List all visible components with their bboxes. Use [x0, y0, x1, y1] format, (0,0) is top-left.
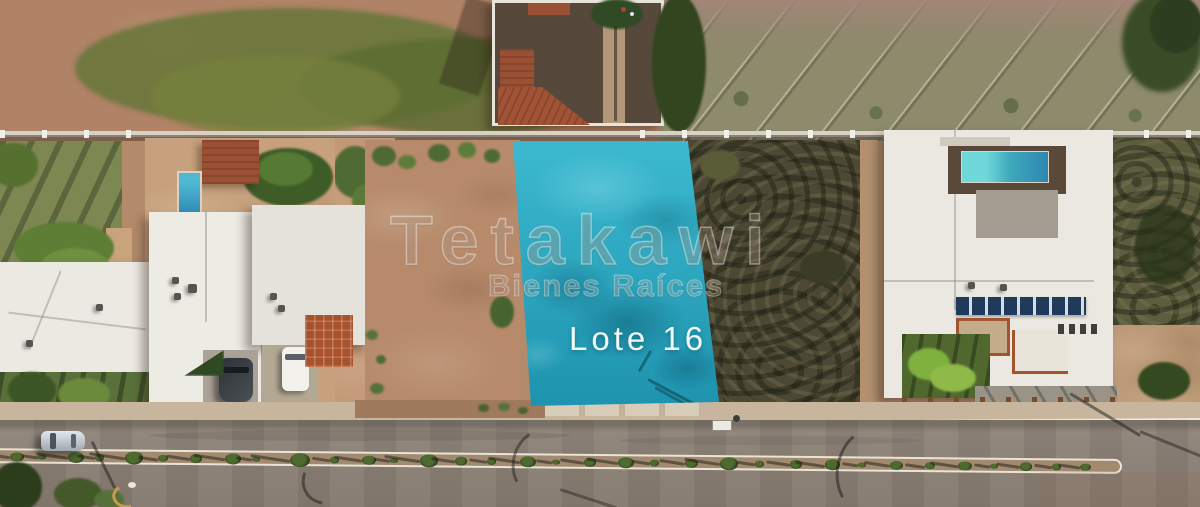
- utility-pole: [733, 415, 740, 422]
- palm-tree: [930, 364, 976, 392]
- shrub-shadow: [469, 459, 487, 465]
- median-shrub: [1080, 463, 1091, 471]
- tree-cluster: [1150, 0, 1200, 53]
- tile-roof: [528, 3, 570, 15]
- clerestory-windows: [1058, 324, 1102, 334]
- weed: [376, 355, 386, 364]
- roof-vent: [26, 340, 33, 347]
- shrub-shadow: [374, 458, 390, 463]
- shrub-shadow: [766, 461, 790, 468]
- large-tree: [258, 152, 313, 186]
- tire-marks: [150, 430, 570, 441]
- stone-patio: [976, 190, 1058, 238]
- palm-trunk-shadow: [614, 27, 617, 121]
- roof-vent: [96, 304, 103, 311]
- shrub-shadow: [659, 459, 685, 466]
- roof-facet: [884, 280, 1094, 282]
- weed: [428, 144, 450, 162]
- weed: [372, 146, 396, 166]
- shrub-shadow: [974, 464, 990, 469]
- weed: [498, 403, 510, 411]
- shrub-shadow: [737, 461, 755, 467]
- weed: [478, 404, 489, 412]
- roof-vent: [270, 293, 277, 300]
- shrub-shadow: [905, 463, 925, 469]
- bush: [1135, 205, 1195, 285]
- bush: [800, 250, 846, 284]
- tree-farm-field: [660, 0, 1200, 141]
- aerial-lot-photo: Lote 16 Tetakawi Bienes Raíces: [0, 0, 1200, 507]
- dirt-path: [860, 140, 878, 408]
- watermark-tagline: Bienes Raíces: [488, 268, 724, 304]
- car-windshield: [50, 433, 56, 449]
- weed: [484, 149, 500, 163]
- weed: [518, 407, 528, 414]
- tile-roof: [498, 87, 590, 125]
- flower-dot: [621, 7, 626, 12]
- casita-compound: [492, 0, 664, 126]
- flower-dot: [630, 12, 634, 16]
- car-rear-window: [71, 434, 76, 448]
- parked-car-silver: [41, 431, 85, 451]
- roof-vent: [1000, 284, 1007, 291]
- roof-facet: [205, 212, 207, 322]
- palm-tree: [591, 0, 643, 29]
- shrub-shadow: [0, 453, 10, 460]
- shrub-shadow: [22, 455, 38, 460]
- median-shrub: [1020, 462, 1032, 471]
- tile-roof: [202, 140, 259, 184]
- shrub-shadow: [996, 463, 1020, 470]
- weed: [458, 142, 476, 158]
- casita-terracotta: [1012, 330, 1068, 374]
- paver-driveway: [305, 315, 353, 367]
- bush: [1138, 362, 1190, 400]
- weed: [398, 155, 416, 169]
- swimming-pool: [961, 151, 1049, 183]
- weed: [370, 383, 384, 394]
- wall-posts: [0, 130, 150, 138]
- solar-panel-array: [956, 297, 1086, 315]
- parked-car-dark: [219, 358, 253, 402]
- roof-vent: [968, 282, 975, 289]
- tile-roof: [500, 49, 534, 93]
- median-shrub: [455, 457, 467, 466]
- gravel-strip: [355, 400, 545, 418]
- house-roof: [0, 262, 158, 376]
- roof-vent: [188, 284, 197, 293]
- shrub-shadow: [166, 455, 190, 462]
- roof-facet: [28, 271, 61, 350]
- median-shrub: [420, 454, 438, 467]
- roof-facet: [8, 312, 145, 331]
- utility-box: [712, 420, 732, 431]
- median-shrub: [720, 457, 738, 470]
- bush: [700, 150, 740, 180]
- pavement-tint: [1040, 472, 1200, 507]
- shrub-shadow: [632, 460, 650, 466]
- shrub-shadow: [1058, 464, 1080, 470]
- median-shrub: [618, 457, 634, 468]
- tree-cluster: [652, 0, 706, 132]
- roof-vent: [174, 293, 181, 300]
- pool-lounge: [940, 137, 1010, 146]
- debris: [128, 482, 136, 488]
- lot-label: Lote 16: [569, 320, 707, 358]
- median-shrub: [958, 461, 972, 471]
- roof-vent: [172, 277, 179, 284]
- grass-patch: [150, 55, 400, 137]
- median-shrub: [650, 460, 659, 466]
- weed: [366, 330, 378, 340]
- car-windshield: [223, 367, 249, 373]
- shrub-shadow: [1034, 464, 1052, 470]
- median-shrub: [755, 461, 764, 467]
- van-windshield: [285, 354, 306, 360]
- roof-vent: [278, 305, 285, 312]
